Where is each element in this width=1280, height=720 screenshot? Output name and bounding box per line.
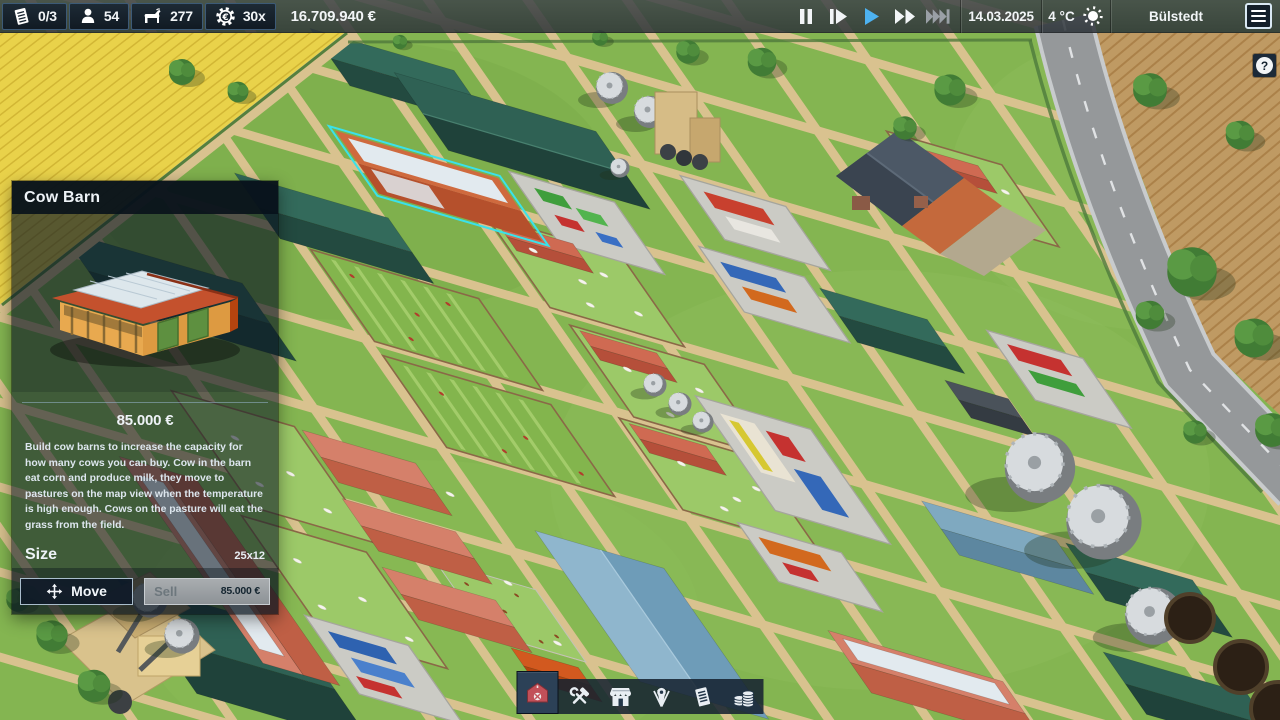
panel-title: Cow Barn — [12, 181, 278, 214]
shop-icon — [608, 685, 632, 709]
missions-value: 0/3 — [38, 8, 57, 24]
tab-finances[interactable] — [723, 679, 764, 714]
playback-controls — [784, 0, 960, 33]
animal-icon — [141, 7, 163, 25]
money-display: 16.709.940 € — [291, 8, 376, 25]
svg-text:€: € — [221, 12, 228, 22]
date-display: 14.03.2025 — [961, 9, 1041, 24]
sell-button[interactable]: Sell 85.000 € — [144, 578, 270, 605]
move-label: Move — [71, 583, 107, 599]
staff-counter[interactable]: 54 — [69, 3, 129, 30]
move-button[interactable]: Move — [20, 578, 133, 605]
temperature-display: 4 °C — [1042, 5, 1110, 27]
tab-buildings[interactable] — [517, 671, 559, 714]
size-value: 25x12 — [234, 550, 265, 562]
coins-icon — [730, 685, 756, 709]
hamburger-menu-button[interactable] — [1245, 3, 1272, 29]
size-label: Size — [25, 546, 57, 564]
cow-barn-render — [12, 214, 278, 392]
tab-fields[interactable] — [641, 679, 682, 714]
building-info-panel: Cow Barn 85.000 € Build — [12, 181, 278, 614]
move-icon — [46, 583, 63, 600]
tab-contracts[interactable] — [682, 679, 723, 714]
help-button[interactable]: ? — [1253, 54, 1276, 77]
field-pin-icon — [649, 685, 673, 709]
document-icon — [690, 685, 714, 709]
building-price: 85.000 € — [12, 412, 278, 429]
play-button[interactable] — [860, 4, 884, 28]
game-screen: 0/3 54 277 € 30x 16.709.940 € — [0, 0, 1280, 720]
pause-button[interactable] — [794, 4, 818, 28]
top-hud-bar: 0/3 54 277 € 30x 16.709.940 € — [0, 0, 1280, 33]
sun-icon — [1082, 5, 1104, 27]
divider — [22, 402, 268, 403]
person-icon — [79, 7, 97, 25]
speed-value: 30x — [243, 8, 266, 24]
hamburger-icon — [1251, 10, 1266, 13]
staff-value: 54 — [104, 8, 119, 24]
building-description: Build cow barns to increase the capacity… — [12, 440, 278, 534]
tab-market[interactable] — [600, 679, 641, 714]
help-label: ? — [1256, 57, 1273, 74]
step-button[interactable] — [827, 4, 851, 28]
building-preview — [12, 214, 278, 392]
speed-multiplier[interactable]: € 30x — [205, 3, 276, 30]
temperature-value: 4 °C — [1048, 9, 1074, 24]
location-display: Bülstedt — [1111, 9, 1241, 24]
tools-icon — [567, 685, 591, 709]
panel-actions: Move Sell 85.000 € — [12, 568, 278, 614]
sell-price: 85.000 € — [221, 585, 260, 597]
sell-label: Sell — [154, 584, 177, 599]
fast-forward-button[interactable] — [893, 4, 917, 28]
animals-value: 277 — [170, 8, 193, 24]
animals-counter[interactable]: 277 — [131, 3, 203, 30]
missions-counter[interactable]: 0/3 — [2, 3, 67, 30]
contracts-icon — [12, 7, 31, 26]
gear-euro-icon: € — [215, 6, 236, 27]
skip-to-event-button[interactable] — [926, 4, 950, 28]
tab-machines[interactable] — [559, 679, 600, 714]
bottom-toolbar — [517, 671, 764, 714]
barn-icon — [525, 681, 551, 705]
